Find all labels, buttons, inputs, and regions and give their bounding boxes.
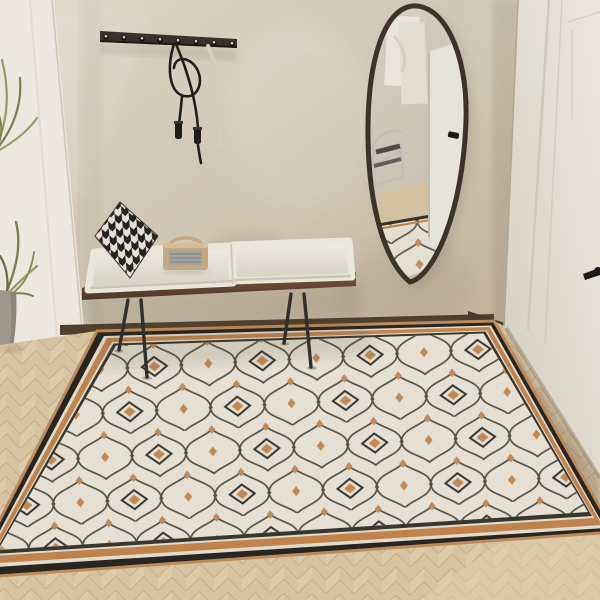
entryway-photo (0, 0, 600, 600)
vignette (0, 0, 600, 600)
